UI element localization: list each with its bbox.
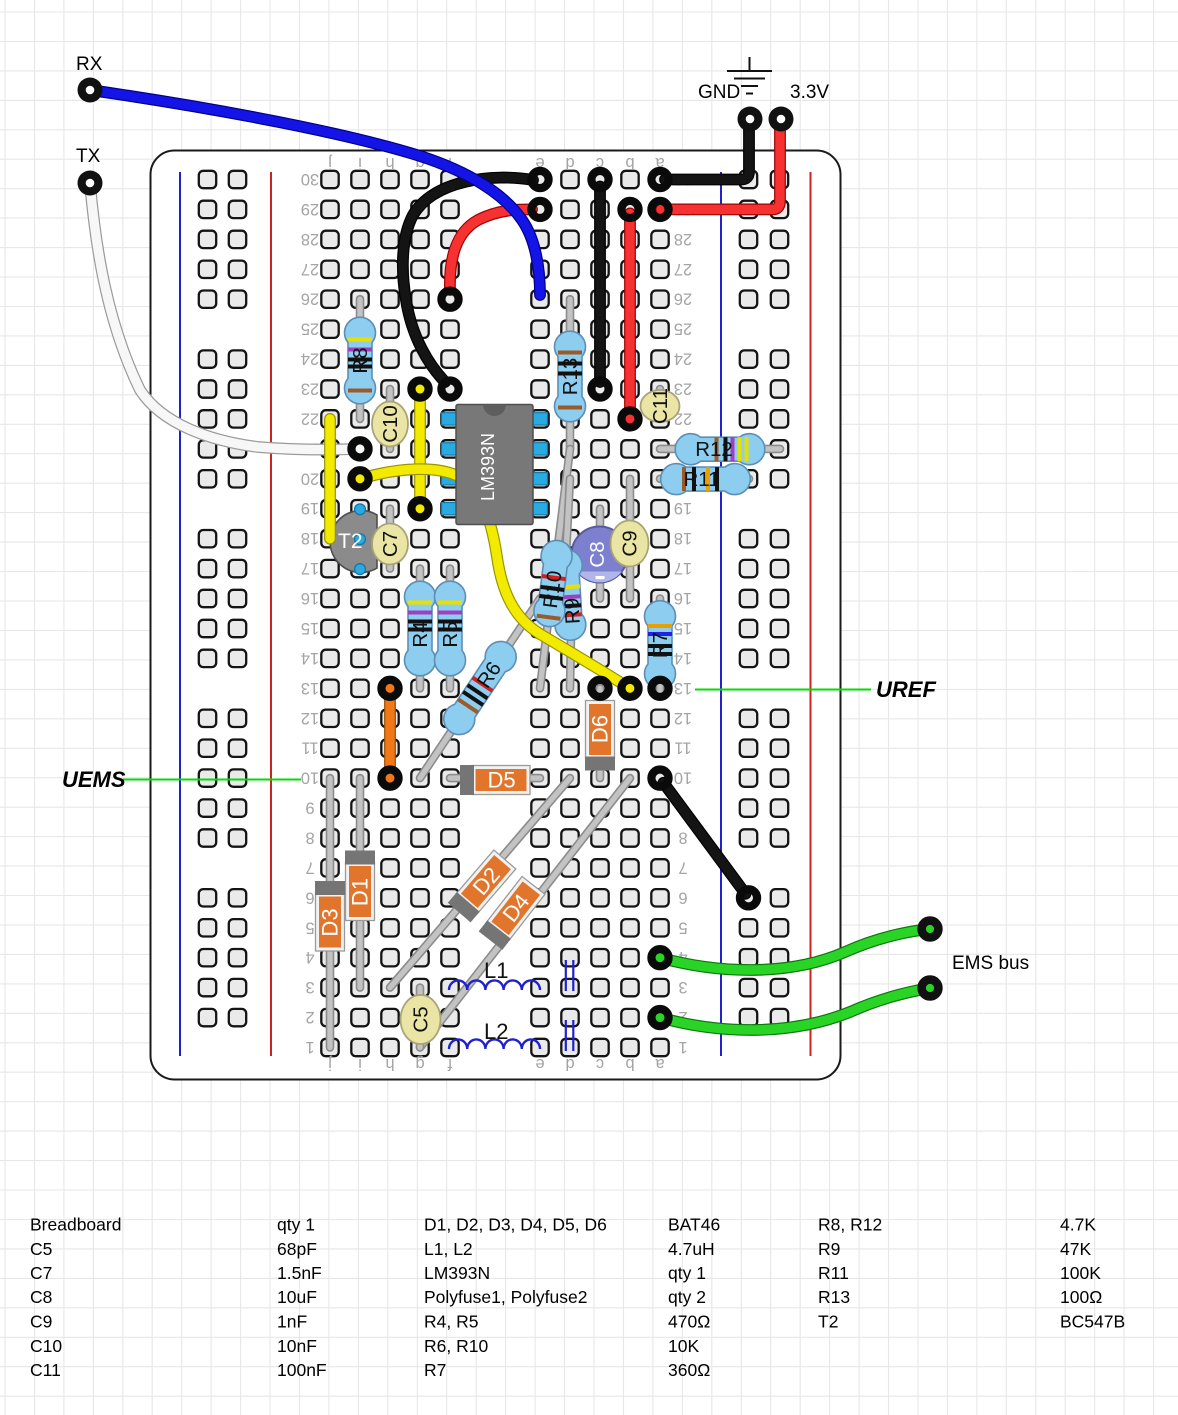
svg-text:BAT46: BAT46: [668, 1215, 720, 1235]
svg-text:R7: R7: [649, 632, 672, 658]
svg-text:4: 4: [305, 948, 314, 966]
svg-text:R12: R12: [695, 438, 733, 461]
svg-text:UEMS: UEMS: [62, 767, 126, 792]
svg-text:R5: R5: [439, 621, 462, 647]
svg-text:100Ω: 100Ω: [1060, 1287, 1102, 1307]
svg-text:D6: D6: [588, 715, 613, 743]
svg-text:14: 14: [301, 649, 319, 667]
svg-text:b: b: [625, 1055, 634, 1073]
svg-text:R11: R11: [683, 468, 719, 491]
svg-text:13: 13: [674, 679, 692, 697]
svg-text:R6, R10: R6, R10: [424, 1336, 488, 1356]
svg-text:26: 26: [301, 290, 319, 308]
svg-text:C11: C11: [649, 388, 672, 424]
svg-text:27: 27: [674, 260, 692, 278]
svg-text:g: g: [415, 1055, 424, 1073]
svg-text:BC547B: BC547B: [1060, 1312, 1125, 1332]
svg-text:7: 7: [678, 858, 687, 876]
svg-text:R7: R7: [424, 1360, 446, 1380]
svg-text:9: 9: [305, 799, 314, 817]
svg-text:20: 20: [301, 469, 319, 487]
svg-text:15: 15: [301, 619, 319, 637]
svg-text:Polyfuse1, Polyfuse2: Polyfuse1, Polyfuse2: [424, 1287, 587, 1307]
svg-text:C9: C9: [30, 1312, 52, 1332]
svg-text:h: h: [385, 154, 394, 172]
svg-text:24: 24: [301, 350, 319, 368]
svg-text:18: 18: [674, 529, 692, 547]
svg-text:C5: C5: [30, 1239, 52, 1259]
svg-text:e: e: [535, 1055, 544, 1073]
svg-text:h: h: [385, 1055, 394, 1073]
svg-text:10uF: 10uF: [277, 1287, 317, 1307]
svg-text:19: 19: [674, 499, 692, 517]
svg-text:28: 28: [674, 230, 692, 248]
svg-text:18: 18: [301, 529, 319, 547]
svg-text:47K: 47K: [1060, 1239, 1091, 1259]
svg-text:12: 12: [301, 709, 319, 727]
svg-text:3: 3: [678, 978, 687, 996]
svg-text:10: 10: [301, 769, 319, 787]
svg-text:23: 23: [674, 380, 692, 398]
svg-text:470Ω: 470Ω: [668, 1312, 710, 1332]
svg-text:EMS bus: EMS bus: [952, 953, 1029, 974]
svg-text:24: 24: [674, 350, 692, 368]
svg-text:1: 1: [305, 1038, 314, 1056]
svg-text:R13: R13: [818, 1287, 850, 1307]
svg-text:29: 29: [301, 200, 319, 218]
svg-text:25: 25: [674, 320, 692, 338]
svg-text:RX: RX: [76, 54, 103, 75]
svg-text:R9: R9: [560, 597, 585, 625]
svg-text:16: 16: [674, 589, 692, 607]
svg-text:a: a: [655, 1055, 665, 1073]
svg-text:TX: TX: [76, 146, 101, 167]
svg-text:f: f: [447, 1055, 452, 1073]
svg-text:c: c: [596, 1055, 604, 1073]
svg-text:R4: R4: [409, 621, 432, 647]
svg-text:qty 2: qty 2: [668, 1287, 706, 1307]
svg-text:1: 1: [678, 1038, 687, 1056]
svg-text:C7: C7: [379, 531, 402, 557]
svg-text:qty 1: qty 1: [277, 1215, 315, 1235]
svg-text:D1, D2, D3, D4, D5, D6: D1, D2, D3, D4, D5, D6: [424, 1215, 607, 1235]
svg-text:15: 15: [674, 619, 692, 637]
svg-text:b: b: [625, 154, 634, 172]
svg-text:L1: L1: [484, 958, 508, 983]
svg-text:2: 2: [305, 1008, 314, 1026]
svg-text:T2: T2: [818, 1312, 838, 1332]
svg-text:Breadboard: Breadboard: [30, 1215, 121, 1235]
svg-text:R8, R12: R8, R12: [818, 1215, 882, 1235]
svg-text:8: 8: [305, 829, 314, 847]
svg-text:C10: C10: [30, 1336, 62, 1356]
svg-text:L1, L2: L1, L2: [424, 1239, 473, 1259]
svg-text:28: 28: [301, 230, 319, 248]
svg-text:UREF: UREF: [876, 677, 936, 702]
svg-text:11: 11: [301, 739, 318, 757]
svg-text:100nF: 100nF: [277, 1360, 327, 1380]
svg-text:100K: 100K: [1060, 1263, 1101, 1283]
svg-text:10K: 10K: [668, 1336, 699, 1356]
svg-text:R13: R13: [559, 358, 582, 396]
svg-text:17: 17: [301, 559, 319, 577]
svg-text:19: 19: [301, 499, 319, 517]
svg-text:5: 5: [305, 918, 314, 936]
svg-text:D1: D1: [348, 878, 373, 906]
svg-text:25: 25: [301, 320, 319, 338]
svg-text:6: 6: [678, 888, 687, 906]
svg-text:3: 3: [305, 978, 314, 996]
svg-text:D3: D3: [318, 908, 343, 936]
svg-text:5: 5: [678, 918, 687, 936]
svg-text:3.3V: 3.3V: [790, 82, 829, 103]
svg-text:4.7uH: 4.7uH: [668, 1239, 715, 1259]
svg-text:R9: R9: [818, 1239, 840, 1259]
svg-text:C8: C8: [30, 1287, 52, 1307]
svg-text:C5: C5: [410, 1006, 433, 1032]
svg-text:GND: GND: [698, 82, 740, 103]
svg-text:23: 23: [301, 380, 319, 398]
svg-text:LM393N: LM393N: [478, 433, 498, 501]
svg-text:14: 14: [674, 649, 692, 667]
svg-text:i: i: [358, 1055, 362, 1073]
svg-text:C7: C7: [30, 1263, 52, 1283]
svg-text:13: 13: [301, 679, 319, 697]
svg-text:d: d: [565, 154, 574, 172]
svg-text:10: 10: [674, 769, 692, 787]
svg-text:j: j: [328, 154, 333, 172]
svg-text:16: 16: [301, 589, 319, 607]
svg-text:i: i: [358, 154, 362, 172]
svg-text:L2: L2: [484, 1019, 508, 1044]
svg-text:12: 12: [674, 709, 692, 727]
svg-text:C10: C10: [379, 405, 402, 443]
svg-text:1nF: 1nF: [277, 1312, 307, 1332]
svg-text:C11: C11: [30, 1360, 61, 1380]
svg-text:22: 22: [301, 409, 319, 427]
svg-text:LM393N: LM393N: [424, 1263, 490, 1283]
svg-text:27: 27: [301, 260, 319, 278]
svg-text:10nF: 10nF: [277, 1336, 317, 1356]
svg-text:R8: R8: [349, 347, 372, 373]
svg-text:6: 6: [305, 888, 314, 906]
svg-text:R11: R11: [818, 1263, 849, 1283]
svg-text:360Ω: 360Ω: [668, 1360, 710, 1380]
svg-text:C9: C9: [619, 530, 642, 556]
svg-text:7: 7: [305, 858, 314, 876]
svg-text:30: 30: [301, 170, 319, 188]
svg-text:8: 8: [678, 829, 687, 847]
svg-text:26: 26: [674, 290, 692, 308]
svg-text:11: 11: [674, 739, 691, 757]
svg-text:d: d: [565, 1055, 574, 1073]
svg-text:17: 17: [674, 559, 692, 577]
svg-text:R4, R5: R4, R5: [424, 1312, 478, 1332]
svg-text:C8: C8: [586, 541, 609, 567]
svg-text:1.5nF: 1.5nF: [277, 1263, 322, 1283]
svg-text:T2: T2: [338, 530, 363, 553]
svg-text:qty 1: qty 1: [668, 1263, 706, 1283]
svg-text:4.7K: 4.7K: [1060, 1215, 1096, 1235]
svg-text:68pF: 68pF: [277, 1239, 317, 1259]
svg-text:D5: D5: [487, 768, 515, 793]
svg-text:j: j: [328, 1055, 333, 1073]
